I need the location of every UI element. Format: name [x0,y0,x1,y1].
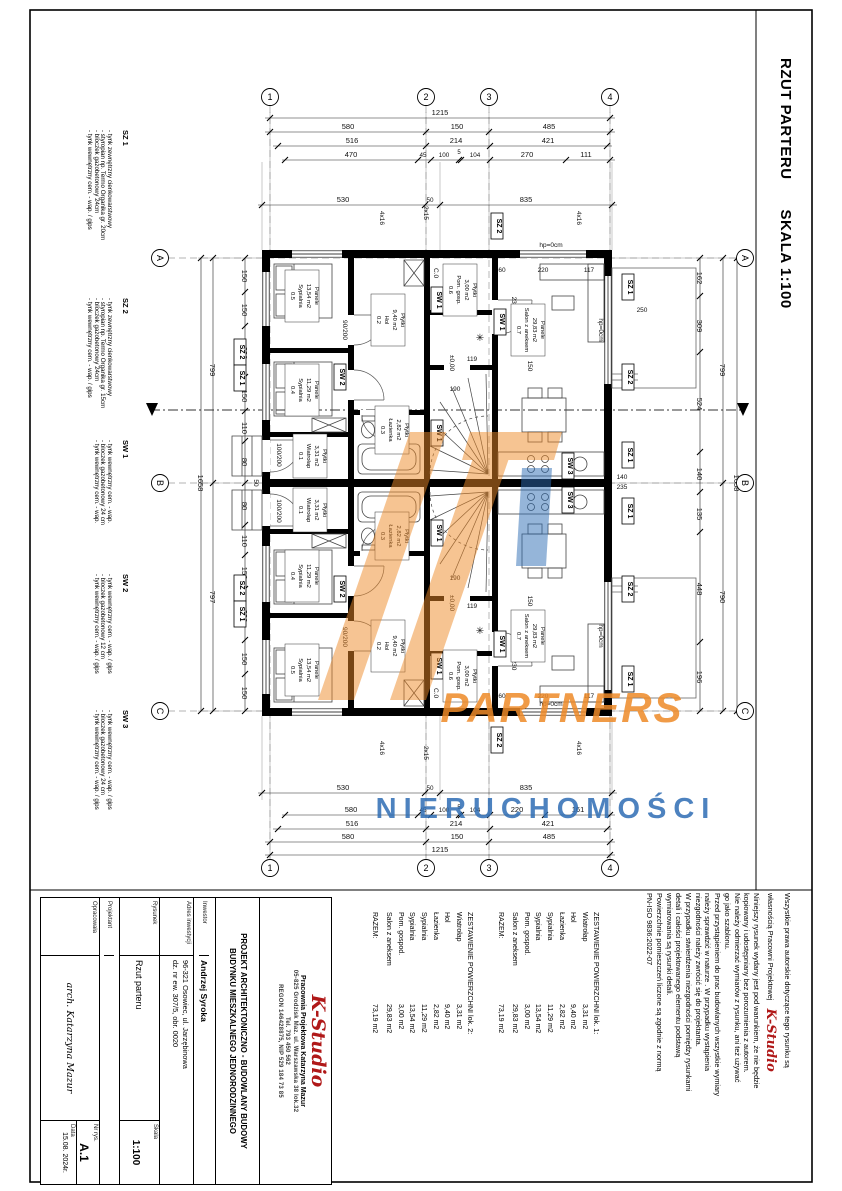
investor-row: Inwestor Andrzej Syroka [193,898,215,1184]
dim: 150 [240,304,249,317]
table-row: Hol9,40 m2 [443,912,450,1084]
steps-note: 4x16 [575,211,582,225]
dim: 524 [695,398,704,411]
steps-note: 4x16 [378,741,385,755]
svg-text:SZ 1: SZ 1 [626,280,633,295]
dim: 135 [695,508,704,521]
dim: 150 [240,687,249,700]
title-text: RZUT PARTERU [777,58,794,180]
dim: 80 [240,458,249,466]
legend-code-sw1: SW 1 [112,440,130,466]
svg-text:Panele: Panele [313,661,319,679]
dim: 150 [526,361,533,372]
dim: 270 [521,150,534,159]
svg-text:SZ 2: SZ 2 [238,581,245,596]
area-table-lok1: ZESTAWIENIE POWIERZCHNI lok. 1: Wiatroła… [488,912,600,1084]
svg-text:0.2: 0.2 [375,316,381,324]
copyright-line: Przed przystąpieniem do prac budowlanych… [713,893,723,1185]
svg-text:Płytki: Płytki [403,423,409,437]
legend-code-sz2: SZ 2 [112,298,130,324]
svg-text:0.5: 0.5 [289,666,295,674]
dim: 580 [342,122,355,131]
dim: 150 [240,653,249,666]
studio-regon-nip: REGON 146428875, NIP 529 184 73 85 [277,898,283,1184]
dim: 60 [498,267,506,274]
legend-code-sz1: SZ 1 [112,130,130,156]
svg-text:Panele: Panele [539,627,545,645]
dim: 50 [426,785,434,792]
drawing-title: RZUT PARTERUSKALA 1:100 [760,58,794,358]
svg-text:C: C [155,708,165,715]
svg-text:0.2: 0.2 [375,642,381,650]
dim: 220 [538,267,549,274]
svg-text:3: 3 [486,92,491,102]
sheet-number-label: Nr rys. [91,1121,99,1184]
level-mark: ±0,00 [448,355,455,372]
dim: 140 [617,474,628,481]
copyright-line: Niniejszy rysunek wydany jest pod warunk… [751,893,761,1185]
svg-text:1: 1 [267,863,272,873]
dim: 580 [342,832,355,841]
svg-text:Łazienka: Łazienka [387,418,393,442]
dim: 214 [450,136,463,145]
sheet-number-cell: Nr rys. A.1 Data 15.08. 2024r. [41,1120,99,1184]
svg-text:Salon z aneksem: Salon z aneksem [523,308,529,353]
svg-text:Płytki: Płytki [471,283,477,297]
dim: 421 [542,136,555,145]
svg-text:29,83 m2: 29,83 m2 [531,624,537,648]
svg-text:4: 4 [607,863,612,873]
legend-code-sw2: SW 2 [112,574,130,600]
table-row: Salon z aneksem29,83 m2 [385,912,392,1084]
dim: 835 [520,783,533,792]
table-row: Sypialnia11,29 m2 [420,912,427,1084]
svg-text:13,54 m2: 13,54 m2 [305,658,311,682]
copyright-line: Powierzchnie pomieszczeń liczone są zgod… [654,893,664,1185]
svg-text:SW 1: SW 1 [435,291,442,308]
copyright-line: własnością Pracowni Projektowej K-Studio [765,893,782,1185]
svg-text:0.4: 0.4 [289,386,295,395]
svg-text:SZ 1: SZ 1 [626,448,633,463]
author-name: arch. Katarzyna Mazur [41,956,99,1120]
steps-note: 4x16 [378,211,385,225]
svg-text:Płytki: Płytki [471,669,477,683]
svg-text:B: B [740,480,750,486]
svg-text:Pom. gosp.: Pom. gosp. [455,275,461,305]
svg-text:SW 2: SW 2 [338,368,345,385]
dim: 196 [695,671,704,684]
svg-text:1: 1 [267,92,272,102]
door-size: 100/200 [275,499,282,523]
drawing-label: Rysunek [120,898,159,956]
date-cell: Data 15.08. 2024r. [41,1121,77,1184]
legend-line: - tynk wewnętrzny cem. - wap. / gips [92,710,99,922]
svg-text:Sypialnia: Sypialnia [297,564,303,588]
dim: 797 [208,591,217,604]
scale-value: 1:100 [120,1121,151,1184]
dim: 530 [337,783,350,792]
svg-text:SW 1: SW 1 [498,313,505,330]
svg-text:SZ 2: SZ 2 [238,345,245,360]
dim: 150 [526,596,533,607]
dim: 530 [337,195,350,204]
dim: 119 [467,603,478,610]
table-row: Pom. gospod.3,00 m2 [397,912,404,1084]
scale-cell: Skala 1:100 [120,1120,159,1184]
scale-text: SKALA 1:100 [777,210,794,309]
area-table-title: ZESTAWIENIE POWIERZCHNI lok. 1: [593,912,600,1084]
copyright-line: kopiowany i udostępniany bez porozumieni… [742,893,752,1185]
investor-name: Andrzej Syroka [198,956,212,1184]
dim: 485 [543,832,556,841]
dim: 799 [718,364,727,377]
svg-text:13,54 m2: 13,54 m2 [305,284,311,308]
dim: 50 [426,197,434,204]
copyright-line: PN-ISO 9836:2022-07 [645,893,655,1185]
copyright-line: należy sprawdzić w naturze . W przypadku… [703,893,713,1185]
svg-text:Panele: Panele [313,287,319,305]
studio-phone: Tel. 793 450 562 [284,898,290,1184]
address-row: Adres inwestycji 96-321 Osowiec, ul. Jar… [159,898,193,1184]
date-label: Data [68,1121,76,1184]
dim: 235 [617,484,628,491]
copyright-line: Wszystkie prawa autorskie dotyczące tego… [782,893,792,1185]
drawing-sheet: 1215 580 150 485 516 214 421 470 45 100 … [0,0,842,1191]
svg-text:29,83 m2: 29,83 m2 [531,318,537,342]
dim: 309 [695,320,704,333]
legend-code-sw3: SW 3 [112,710,130,736]
copyright-line: go jako szablonu. [722,893,732,1185]
dim: 80 [240,502,249,510]
legend-line: - tynk wewnętrzny cem. - wap. / gips [105,710,112,922]
copyright-line: niezgodności należy zwrócić się do proje… [693,893,703,1185]
dim: 100 [439,152,450,159]
dim: 1215 [432,108,449,117]
svg-text:Płytki: Płytki [321,503,327,517]
svg-text:0.1: 0.1 [297,452,303,460]
watermark-word-2: NIERUCHOMOŚCI [376,791,717,825]
svg-text:SZ 2: SZ 2 [495,733,502,748]
sheet-number: A.1 [77,1121,91,1184]
svg-text:Hol: Hol [383,642,389,651]
svg-text:0.1: 0.1 [297,506,303,514]
svg-text:3: 3 [486,863,491,873]
svg-text:11,29 m2: 11,29 m2 [305,564,311,588]
dim: 1215 [432,845,449,854]
copyright-line: W przypadku stwierdzenia niezgodności po… [683,893,693,1185]
table-total: RAZEM:73,19 m2 [371,912,378,1084]
dim: 1658 [196,475,205,492]
svg-text:4: 4 [607,92,612,102]
author-label: Opracowała [41,898,99,956]
svg-text:SW 1: SW 1 [498,635,505,652]
dim: 835 [520,195,533,204]
svg-text:SW 1: SW 1 [435,524,442,541]
svg-text:Panele: Panele [313,567,319,585]
svg-text:Sypialnia: Sypialnia [297,658,303,682]
svg-text:9,40 m2: 9,40 m2 [391,636,397,657]
svg-text:SZ 1: SZ 1 [238,371,245,386]
copyright-line: detali i całości projektowanego elementu… [674,893,684,1185]
drawing-name: Rzut parteru [120,956,159,1120]
dim: 190 [450,386,461,393]
investor-label: Inwestor [200,898,210,956]
dim: 790 [718,591,727,604]
title-block: K-Studio Pracownia Projektowa Katarzyna … [40,897,332,1185]
svg-text:Płytki: Płytki [321,449,327,463]
steps-note: 2x15 [422,746,429,760]
studio-logo: K-Studio [307,898,328,1184]
svg-text:SW 3: SW 3 [566,457,573,474]
scale-label: Skala [151,1121,159,1184]
svg-text:0.3: 0.3 [379,426,385,434]
table-row: Sypialnia13,54 m2 [408,912,415,1084]
table-row: Wiatrołap3,31 m2 [581,912,588,1084]
designer-row: Projektant [99,898,119,1184]
legend-item-sw3: - tynk wewnętrzny cem. - wap. / gips - b… [90,710,112,922]
svg-text:Wiatrołap: Wiatrołap [305,444,311,468]
dim: 150 [451,122,464,131]
svg-text:✳: ✳ [476,626,484,637]
project-title: PROJEKT ARCHITEKTONICZNO - BUDOWLANY BUD… [215,898,259,1184]
table-row: Pom. gospod.3,00 m2 [523,912,530,1084]
svg-text:0.6: 0.6 [447,286,453,294]
dim: 250 [637,307,648,314]
svg-text:Panele: Panele [313,381,319,399]
copyright-block: Wszystkie prawa autorskie dotyczące tego… [602,893,792,1185]
table-row: Sypialnia11,29 m2 [546,912,553,1084]
studio-logo: K-Studio [762,1008,779,1071]
door-size: 100/200 [275,443,282,467]
table-row: Wiatrołap3,31 m2 [455,912,462,1084]
signature-row: Opracowała arch. Katarzyna Mazur Nr rys.… [41,898,99,1184]
sill-note: hp=0cm [539,242,562,249]
area-table-lok2: ZESTAWIENIE POWIERZCHNI lok. 2: Wiatroła… [362,912,474,1084]
studio-name: Pracownia Projektowa Katarzyna Mazur [299,898,306,1184]
svg-text:SZ 1: SZ 1 [626,504,633,519]
area-table-title: ZESTAWIENIE POWIERZCHNI lok. 2: [467,912,474,1084]
svg-text:SW 2: SW 2 [338,580,345,597]
dim: 117 [584,267,595,274]
drawing-row: Rysunek Rzut parteru Skala 1:100 [119,898,159,1184]
svg-text:0.7: 0.7 [515,632,521,640]
svg-text:Sypialnia: Sypialnia [297,378,303,402]
dim: 5 [457,150,461,156]
svg-text:3,31 m2: 3,31 m2 [313,500,319,521]
dim: 140 [695,468,704,481]
svg-text:B: B [155,480,165,486]
dim: 150 [240,270,249,283]
date-value: 15.08. 2024r. [59,1121,68,1184]
section-line [146,403,749,416]
dim: 111 [580,150,591,159]
svg-text:SZ 2: SZ 2 [495,219,502,234]
address-value: 96-321 Osowiec, ul. Jarzębinowa dz. nr e… [160,956,193,1184]
svg-text:3,00 m2: 3,00 m2 [463,280,469,301]
watermark-word-1: PARTNERS [440,684,683,731]
svg-text:SZ 1: SZ 1 [238,607,245,622]
chimney-label: C.0 [432,688,439,699]
svg-text:Panele: Panele [539,321,545,339]
designer-label: Projektant [105,898,115,956]
copyright-line: wymiarowania są rysunki detali. [664,893,674,1185]
table-total: RAZEM:73,19 m2 [497,912,504,1084]
table-row: Salon z aneksem29,83 m2 [511,912,518,1084]
svg-text:Płytki: Płytki [399,639,405,653]
table-row: Łazienka2,82 m2 [432,912,439,1084]
dim: 104 [470,152,481,159]
table-row: Sypialnia13,54 m2 [534,912,541,1084]
svg-text:2,82 m2: 2,82 m2 [395,420,401,441]
svg-text:C: C [740,708,750,715]
door-size: 90/200 [341,320,348,340]
svg-text:2: 2 [423,92,428,102]
svg-text:0.6: 0.6 [447,672,453,680]
steps-note: 4x16 [575,741,582,755]
copyright-line: Nie należy odmierzać wymiarów z rysunku,… [732,893,742,1185]
sill-note: hp=0cm [597,318,604,341]
dim: 470 [345,150,358,159]
table-row: Hol9,40 m2 [569,912,576,1084]
address-label: Adres inwestycji [160,898,193,956]
svg-text:11,29 m2: 11,29 m2 [305,378,311,402]
dim: 799 [208,364,217,377]
studio-address: 05-825 Grodzisk Maz. ul. Warszawska 38 l… [292,898,298,1184]
steps-note: 2x15 [422,206,429,220]
table-row: Łazienka2,82 m2 [558,912,565,1084]
dim: 162 [695,272,704,285]
studio-stamp: K-Studio Pracownia Projektowa Katarzyna … [259,898,331,1184]
chimney-label: C.0 [432,268,439,279]
svg-text:9,40 m2: 9,40 m2 [391,310,397,331]
dim: 448 [695,583,704,596]
svg-text:A: A [155,255,165,261]
dim: 150 [451,832,464,841]
svg-text:A: A [740,255,750,261]
svg-text:Sypialnia: Sypialnia [297,284,303,308]
dim: 485 [543,122,556,131]
svg-text:SW 3: SW 3 [566,491,573,508]
dim: 580 [345,805,358,814]
dim: 150 [240,390,249,403]
sill-note: hp=0cm [597,624,604,647]
dim: 50 [252,479,259,487]
svg-text:SZ 2: SZ 2 [626,582,633,597]
svg-text:0.7: 0.7 [515,326,521,334]
svg-text:Salon z aneksem: Salon z aneksem [523,614,529,659]
svg-text:0.4: 0.4 [289,572,295,581]
svg-text:3,31 m2: 3,31 m2 [313,446,319,467]
dim: 45 [419,152,427,159]
dim: 119 [467,356,478,363]
svg-text:Hol: Hol [383,316,389,325]
svg-text:0.5: 0.5 [289,292,295,300]
svg-text:Wiatrołap: Wiatrołap [305,498,311,522]
dim: 110 [240,422,249,434]
dim: 516 [346,819,359,828]
svg-text:2: 2 [423,863,428,873]
svg-text:SZ 2: SZ 2 [626,370,633,385]
dim: 110 [240,535,249,547]
svg-text:✳: ✳ [476,333,484,344]
svg-text:Płytki: Płytki [399,313,405,327]
dim: 516 [346,136,359,145]
